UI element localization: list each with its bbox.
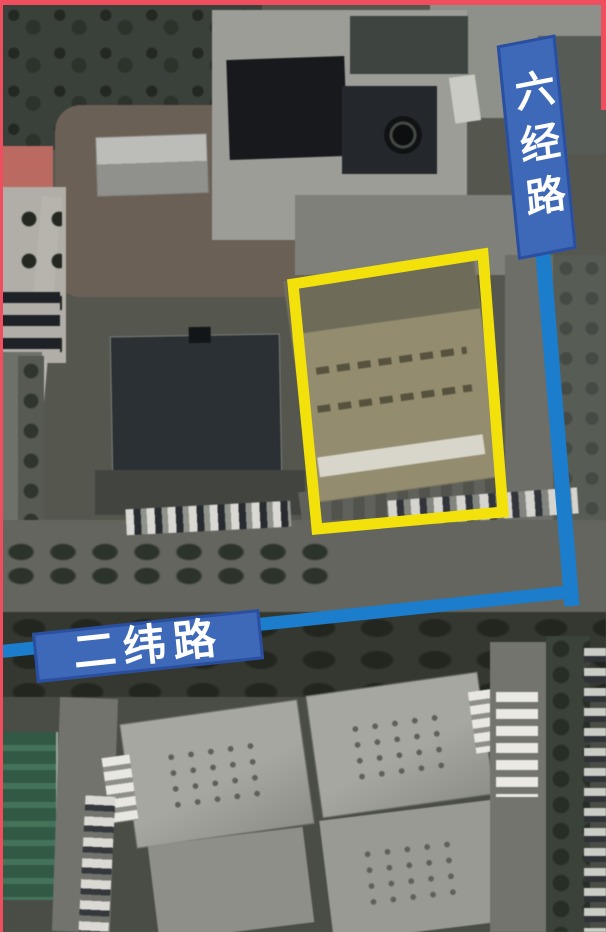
red-court: [0, 146, 53, 187]
pavement-middle: [295, 195, 525, 275]
frame-border-right: [601, 0, 606, 110]
sports-field: [0, 732, 58, 900]
dark-flat-roof-building: [111, 335, 281, 480]
dark-roof-building-3: [350, 16, 468, 74]
map-figure: 六经路 二纬路: [0, 0, 606, 932]
road-label-liujing-text: 六经路: [509, 66, 565, 232]
roof-vents: [345, 708, 456, 783]
roof-vent-row-2: [317, 384, 472, 413]
roof-vents: [160, 736, 274, 812]
frame-border-left: [0, 0, 3, 932]
warehouse-northeast: [306, 673, 493, 818]
frame-border-top: [0, 0, 606, 5]
parking-lot-left: [0, 292, 60, 360]
highlighted-building-roof: [284, 256, 503, 502]
pitched-roof-building: [96, 134, 208, 196]
roof-vents: [357, 834, 467, 907]
roof-cupola: [189, 327, 211, 343]
warehouse-southwest: [148, 827, 315, 932]
roof-vent-row-1: [316, 346, 467, 374]
trucks-row: [496, 692, 538, 797]
warehouse-southeast: [319, 800, 505, 932]
dark-roof-building-1: [226, 56, 347, 160]
street-trees: [0, 540, 330, 588]
warehouse-northwest: [120, 700, 314, 848]
round-roof-structure: [384, 116, 422, 154]
parked-cars-right-edge: [584, 648, 606, 932]
roof-light-strip: [317, 434, 485, 477]
